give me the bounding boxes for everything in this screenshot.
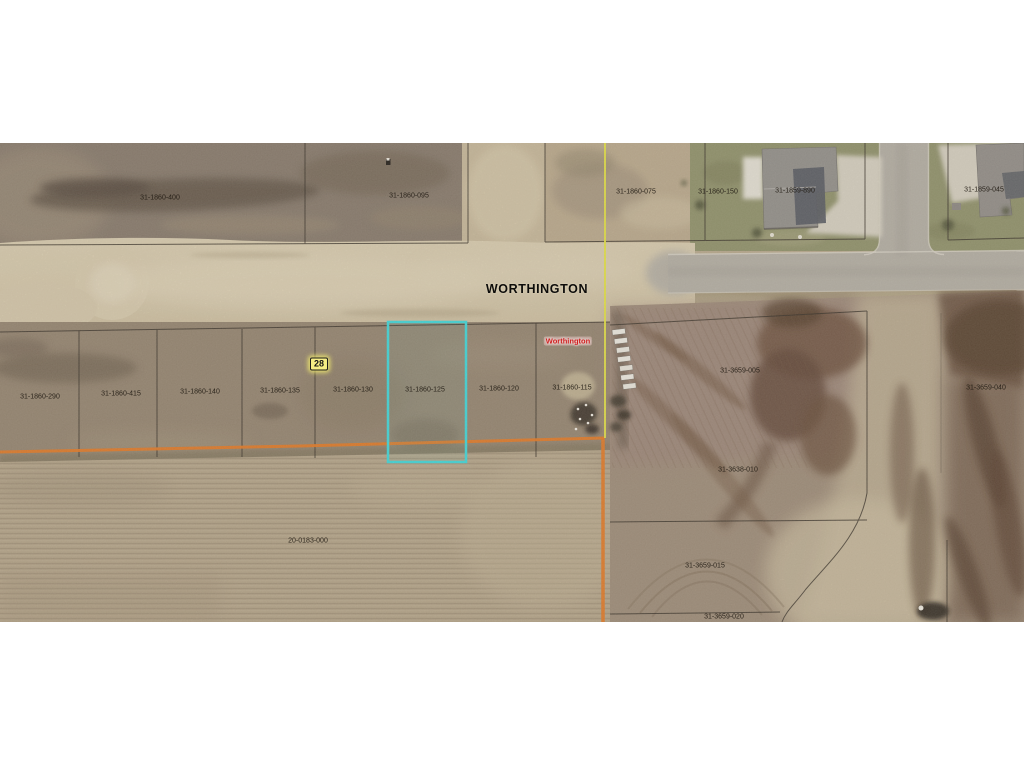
photo-grain-light: [0, 143, 1024, 622]
map-viewport[interactable]: 31-1860-400 31-1860-095 31-1860-075 31-1…: [0, 143, 1024, 622]
page: 31-1860-400 31-1860-095 31-1860-075 31-1…: [0, 0, 1024, 768]
aerial-basemap[interactable]: [0, 143, 1024, 622]
